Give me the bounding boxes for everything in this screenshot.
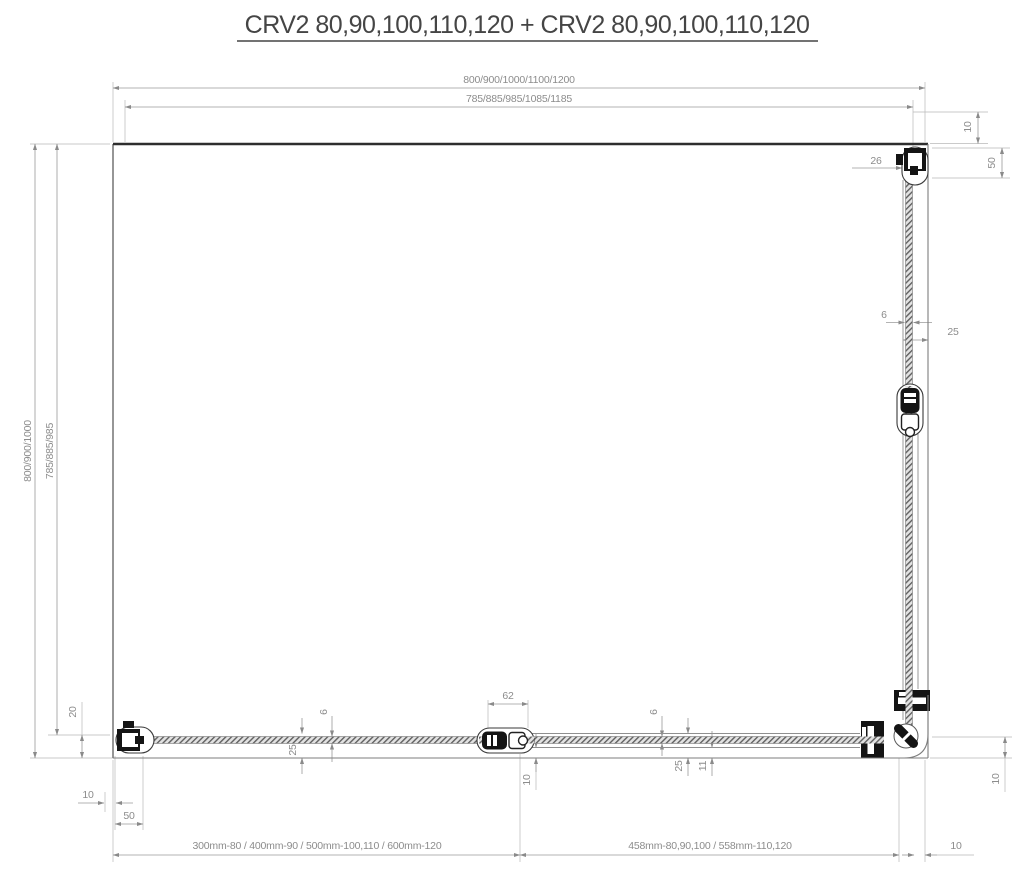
shower-enclosure-plan-drawing: CRV2 80,90,100,110,120 + CRV2 80,90,100,… bbox=[0, 0, 1024, 886]
dim-bottom-glass-thickness-left: 6 bbox=[318, 709, 330, 715]
technical-drawing-page: { "title": "CRV2 80,90,100,110,120 + CRV… bbox=[0, 0, 1024, 886]
dim-height-total: 800/900/1000 bbox=[22, 420, 34, 482]
wall-hinge-top-right bbox=[896, 147, 928, 185]
dim-bottom-right-wall-gap: 10 bbox=[950, 840, 962, 852]
dim-bottom-left-wall-gap: 10 bbox=[82, 789, 94, 801]
dim-top-right-hinge-offset: 26 bbox=[870, 155, 882, 167]
glass-panel-right bbox=[906, 181, 913, 728]
corner-clamp-right bbox=[894, 690, 930, 711]
dim-top-right-profile-depth: 50 bbox=[986, 157, 998, 169]
dim-width-glass: 785/885/985/1085/1185 bbox=[466, 93, 572, 105]
corner-clamp-bottom bbox=[861, 721, 884, 758]
dim-bottom-panel-offset: 11 bbox=[697, 760, 709, 771]
dim-door-width-range: 300mm-80 / 400mm-90 / 500mm-100,110 / 60… bbox=[193, 840, 442, 852]
dim-height-glass: 785/885/985 bbox=[44, 423, 56, 480]
dim-fixed-width-range: 458mm-80,90,100 / 558mm-110,120 bbox=[628, 840, 792, 852]
title-block: CRV2 80,90,100,110,120 + CRV2 80,90,100,… bbox=[237, 11, 818, 41]
panel-connector-center bbox=[477, 728, 534, 753]
dim-top-right-wall-gap: 10 bbox=[962, 121, 974, 133]
dim-door-overlap: 62 bbox=[502, 690, 514, 702]
dim-bottom-glass-thickness-right: 6 bbox=[648, 709, 660, 715]
right-door-assembly bbox=[903, 144, 928, 758]
dim-bottom-center-gap: 10 bbox=[521, 774, 533, 786]
dim-bottom-profile-width-left: 25 bbox=[287, 744, 299, 756]
dim-width-total: 800/900/1000/1100/1200 bbox=[463, 74, 575, 86]
dim-right-profile-width: 25 bbox=[947, 326, 959, 338]
dim-bottom-right-corner-gap: 10 bbox=[990, 773, 1002, 785]
drawing-title: CRV2 80,90,100,110,120 + CRV2 80,90,100,… bbox=[245, 11, 810, 39]
dim-bottom-profile-width-right: 25 bbox=[673, 760, 685, 772]
dim-right-glass-thickness: 6 bbox=[881, 309, 887, 321]
enclosure-walls bbox=[113, 144, 928, 758]
panel-connector-right bbox=[897, 384, 923, 437]
wall-hinge-bottom-left bbox=[116, 721, 154, 753]
dim-bottom-left-profile-depth: 50 bbox=[123, 810, 135, 822]
dim-left-bottom-glass-offset: 20 bbox=[67, 706, 79, 718]
